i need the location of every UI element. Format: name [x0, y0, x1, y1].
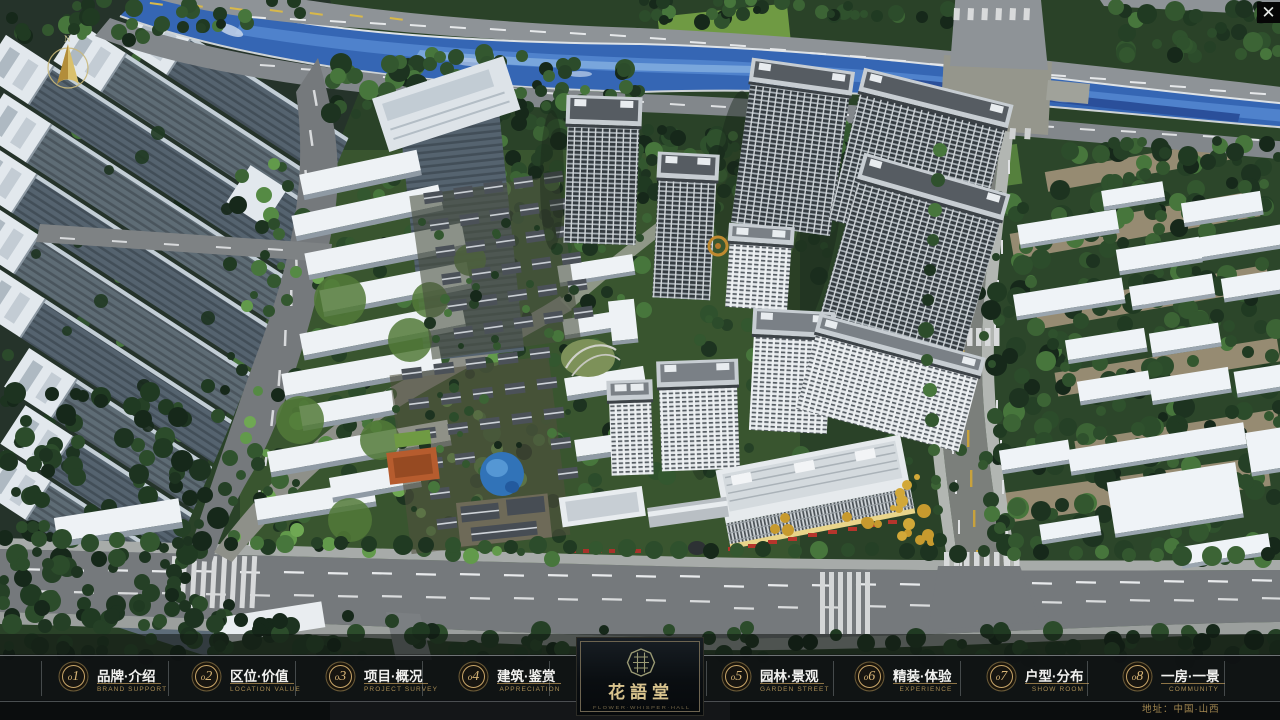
- svg-text:F L O W E R · W H I S P E R ·: F L O W E R · W H I S P E R · H A L L: [593, 705, 690, 710]
- svg-text:N: N: [64, 34, 71, 44]
- svg-text:花語堂: 花語堂: [608, 682, 674, 702]
